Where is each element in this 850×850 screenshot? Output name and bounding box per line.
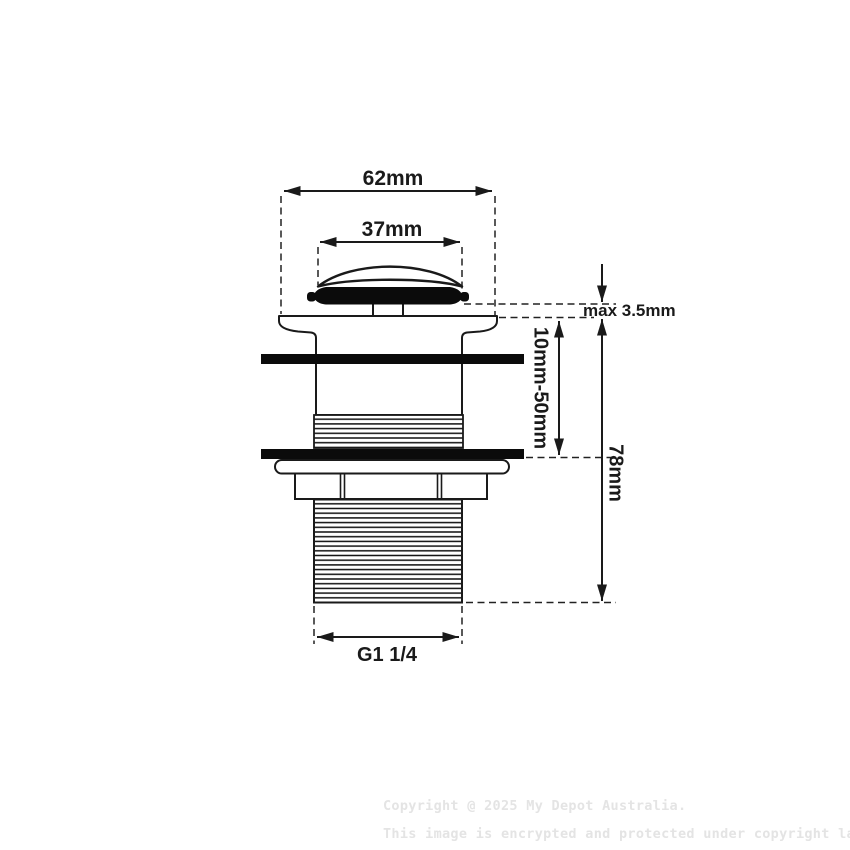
dimension-flange-width: 62mm	[284, 167, 492, 191]
dimension-thread-size: G1 1/4	[317, 637, 459, 666]
flange-and-body	[279, 316, 497, 415]
dimension-label: max 3.5mm	[583, 301, 676, 320]
dimension-label: 62mm	[363, 167, 424, 190]
cap-base	[314, 287, 462, 305]
pop-up-cap	[307, 267, 469, 316]
rubber-washer-top	[261, 354, 524, 364]
watermark-line-2: This image is encrypted and protected un…	[383, 826, 850, 842]
dimension-label: 10mm-50mm	[530, 327, 552, 449]
sealing-gasket	[275, 460, 509, 474]
cap-dome	[318, 267, 462, 287]
adjustment-threads	[314, 415, 463, 448]
backnut-body	[295, 474, 487, 500]
dimension-clamp-range: 10mm-50mm	[530, 321, 559, 455]
technical-drawing: 62mm 37mm max 3.5mm 10mm-50mm 78mm G1 1/…	[0, 0, 850, 850]
dimension-label: 78mm	[605, 444, 627, 502]
backnut	[295, 474, 487, 500]
rubber-washer-bottom	[261, 449, 524, 459]
dimension-max-gap: max 3.5mm	[583, 264, 676, 320]
threaded-tail	[314, 500, 462, 603]
watermark-line-1: Copyright @ 2025 My Depot Australia.	[383, 798, 686, 814]
dimension-label: 37mm	[362, 218, 423, 241]
drain-fixture	[261, 267, 524, 603]
dimension-overall-height: 78mm	[602, 319, 627, 601]
dimension-cap-width: 37mm	[320, 218, 460, 242]
dimension-label: G1 1/4	[357, 644, 418, 666]
